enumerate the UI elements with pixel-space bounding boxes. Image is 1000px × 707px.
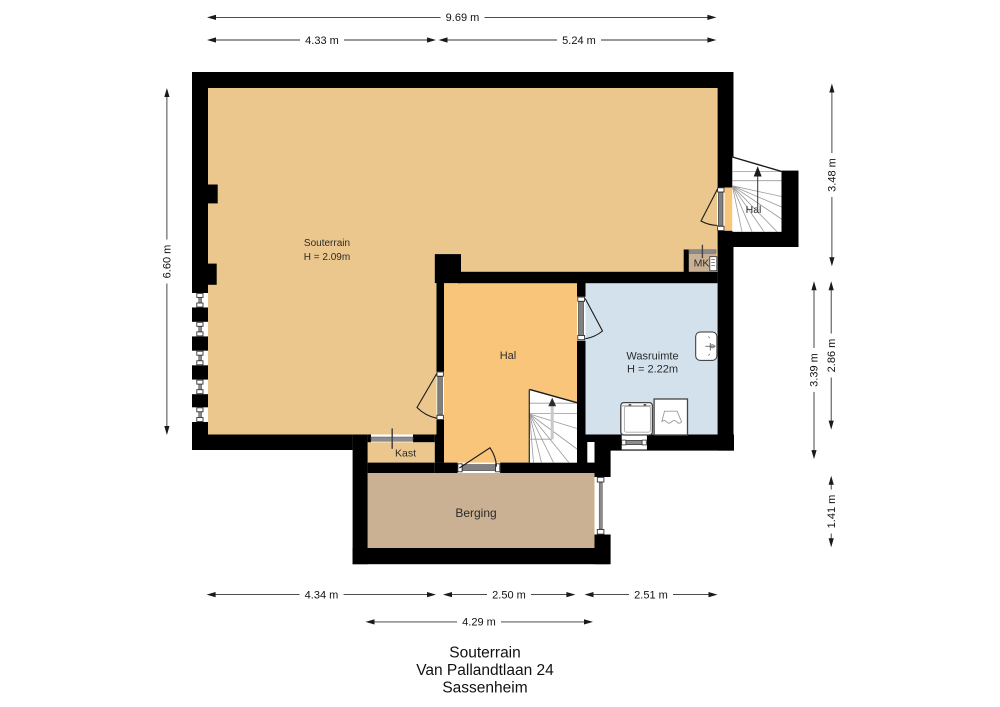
svg-text:5.24 m: 5.24 m (562, 35, 596, 47)
svg-text:4.33 m: 4.33 m (305, 35, 339, 47)
svg-text:1.41 m: 1.41 m (826, 495, 838, 529)
svg-text:3.39 m: 3.39 m (809, 353, 821, 387)
svg-text:MK: MK (694, 258, 710, 270)
svg-text:Kast: Kast (395, 448, 416, 460)
svg-text:H = 2.09m: H = 2.09m (304, 252, 350, 263)
svg-text:4.34 m: 4.34 m (305, 589, 339, 601)
svg-text:2.50 m: 2.50 m (492, 589, 526, 601)
svg-text:Van Pallandtlaan 24: Van Pallandtlaan 24 (416, 662, 554, 679)
svg-text:H = 2.22m: H = 2.22m (627, 364, 678, 376)
svg-text:Wasruimte: Wasruimte (626, 351, 678, 363)
svg-text:3.48 m: 3.48 m (827, 158, 839, 192)
svg-text:Souterrain: Souterrain (449, 645, 521, 662)
svg-text:Berging: Berging (455, 506, 496, 520)
svg-text:2.51 m: 2.51 m (634, 589, 668, 601)
svg-text:Hal: Hal (746, 204, 762, 216)
svg-text:2.86 m: 2.86 m (826, 339, 838, 373)
svg-text:6.60 m: 6.60 m (162, 245, 174, 279)
svg-text:Sassenheim: Sassenheim (442, 680, 527, 697)
svg-text:4.29 m: 4.29 m (462, 617, 496, 629)
svg-text:9.69 m: 9.69 m (446, 12, 480, 24)
svg-text:Hal: Hal (500, 350, 517, 362)
svg-text:Souterrain: Souterrain (304, 238, 350, 249)
